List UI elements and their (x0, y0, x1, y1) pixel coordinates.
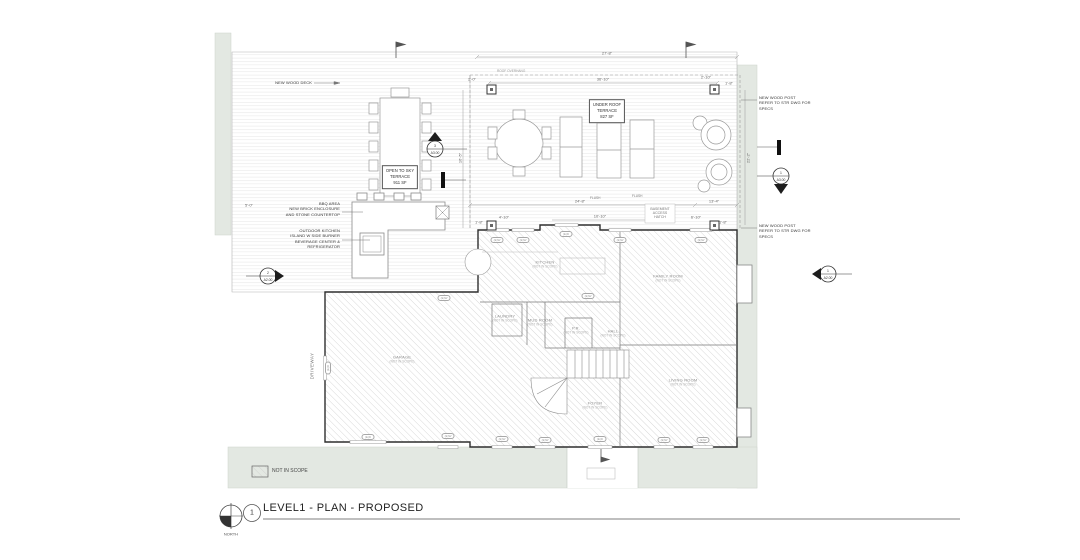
dim-s6: 6'-10" (691, 215, 701, 220)
garage-door-tag: (E)D (362, 434, 375, 440)
room-label-living: LIVING ROOM(NOT IN SCOPE) (669, 379, 698, 388)
note-flush-2: FLUSH (632, 194, 642, 198)
dim-top-inner: 36'-10" (597, 77, 609, 82)
window-tag: (E)W (438, 295, 451, 301)
note-bbq-area: BBQ AREA NEW BRICK ENCLOSURE AND STONE C… (286, 201, 340, 217)
note-new-wood-deck: NEW WOOD DECK (275, 80, 312, 85)
open-terrace-label: OPEN TO SKY TERRACE 911 SF (382, 165, 418, 189)
dim-s7: 1'-8" (719, 220, 727, 225)
elev-right-sheet: A2.00 (824, 276, 833, 280)
section-right-sheet: A3.00 (777, 178, 786, 182)
dim-mid-inner: 10'-10" (594, 214, 606, 219)
window-tag: (E)W (496, 436, 509, 442)
dim-s2: 2'-10" (701, 75, 711, 80)
roof-terrace-line1: UNDER ROOF (593, 102, 621, 108)
elev-left-num: 2 (267, 271, 269, 275)
window-tag: (E)W (697, 437, 710, 443)
dim-s8: 5'-0" (245, 203, 253, 208)
dim-s4: 1'-8" (475, 220, 483, 225)
note-flush-1: FLUSH (590, 196, 600, 200)
dim-s5: 4'-10" (499, 215, 509, 220)
elev-left-sheet: A2.00 (264, 278, 273, 282)
title-callout-number: 1 (250, 510, 254, 517)
section-deck-num: 3 (434, 144, 436, 148)
door-tag: (E)D (560, 231, 573, 237)
room-label-hall: HALL(NOT IN SCOPE) (601, 330, 626, 339)
dim-mid-right: 13'-4" (709, 199, 719, 204)
window-tag: (E)W (658, 437, 671, 443)
open-terrace-line2: TERRACE (386, 174, 414, 180)
room-label-garage: GARAGE(NOT IN SCOPE) (390, 356, 415, 365)
plan-title: LEVEL1 - PLAN - PROPOSED (263, 502, 424, 514)
room-label-kitchen: KITCHEN(NOT IN SCOPE) (533, 261, 558, 270)
dim-right-vert: 22'-2" (746, 153, 751, 163)
elev-right-num: 1 (827, 269, 829, 273)
window-tag: (E)W (517, 237, 530, 243)
side-door-tag: (E)D (325, 362, 331, 375)
window-tag: (E)W (539, 437, 552, 443)
dim-left-vert: 16'-5" (458, 153, 463, 163)
window-tag: (E)W (582, 293, 595, 299)
north-label: NORTH (224, 532, 238, 537)
room-label-foyer: FOYER(NOT IN SCOPE) (583, 402, 608, 411)
legend-not-in-scope-label: NOT IN SCOPE (272, 468, 308, 474)
dim-mid-left: 24'-8" (575, 199, 585, 204)
note-wood-post-bottom: NEW WOOD POST REFER TO STR DWG FOR SPECS (759, 223, 811, 239)
room-label-mud: MUD ROOM(NOT IN SCOPE) (528, 319, 553, 328)
window-tag: (E)W (614, 237, 627, 243)
window-tag: (E)W (442, 433, 455, 439)
dim-top-outer: 27'-8" (602, 51, 612, 56)
room-label-laundry: LAUNDRY(NOT IN SCOPE) (493, 315, 518, 324)
open-terrace-line1: OPEN TO SKY (386, 168, 414, 174)
roof-terrace-line3: 827 SF (593, 114, 621, 120)
note-wood-post-top: NEW WOOD POST REFER TO STR DWG FOR SPECS (759, 95, 811, 111)
window-tag: (E)W (695, 237, 708, 243)
roof-terrace-line2: TERRACE (593, 108, 621, 114)
open-terrace-line3: 911 SF (386, 180, 414, 186)
dim-s3: 1'-8" (725, 81, 733, 86)
driveway-label: DRIVEWAY (310, 353, 315, 380)
dim-s1: 2'-0" (468, 77, 476, 82)
roof-terrace-label: UNDER ROOF TERRACE 827 SF (589, 99, 625, 123)
note-roof-overhang: ROOF OVERHANG (497, 69, 525, 73)
room-label-pr: P.R.(NOT IN SCOPE) (564, 327, 589, 336)
section-deck-sheet: A3.00 (431, 151, 440, 155)
floor-plan-sheet: LEVEL1 - PLAN - PROPOSED 1 NORTH NOT IN … (0, 0, 1080, 560)
note-outdoor-kitchen: OUTDOOR KITCHEN ISLAND W SIDE BURNER BEV… (290, 228, 340, 250)
section-right-num: 1 (780, 171, 782, 175)
note-basement-hatch: BASEMENT ACCESS HATCH (650, 207, 669, 219)
window-tag: (E)W (491, 237, 504, 243)
door-tag: (E)D (594, 436, 607, 442)
room-label-family: FAMILY ROOM(NOT IN SCOPE) (653, 275, 683, 284)
